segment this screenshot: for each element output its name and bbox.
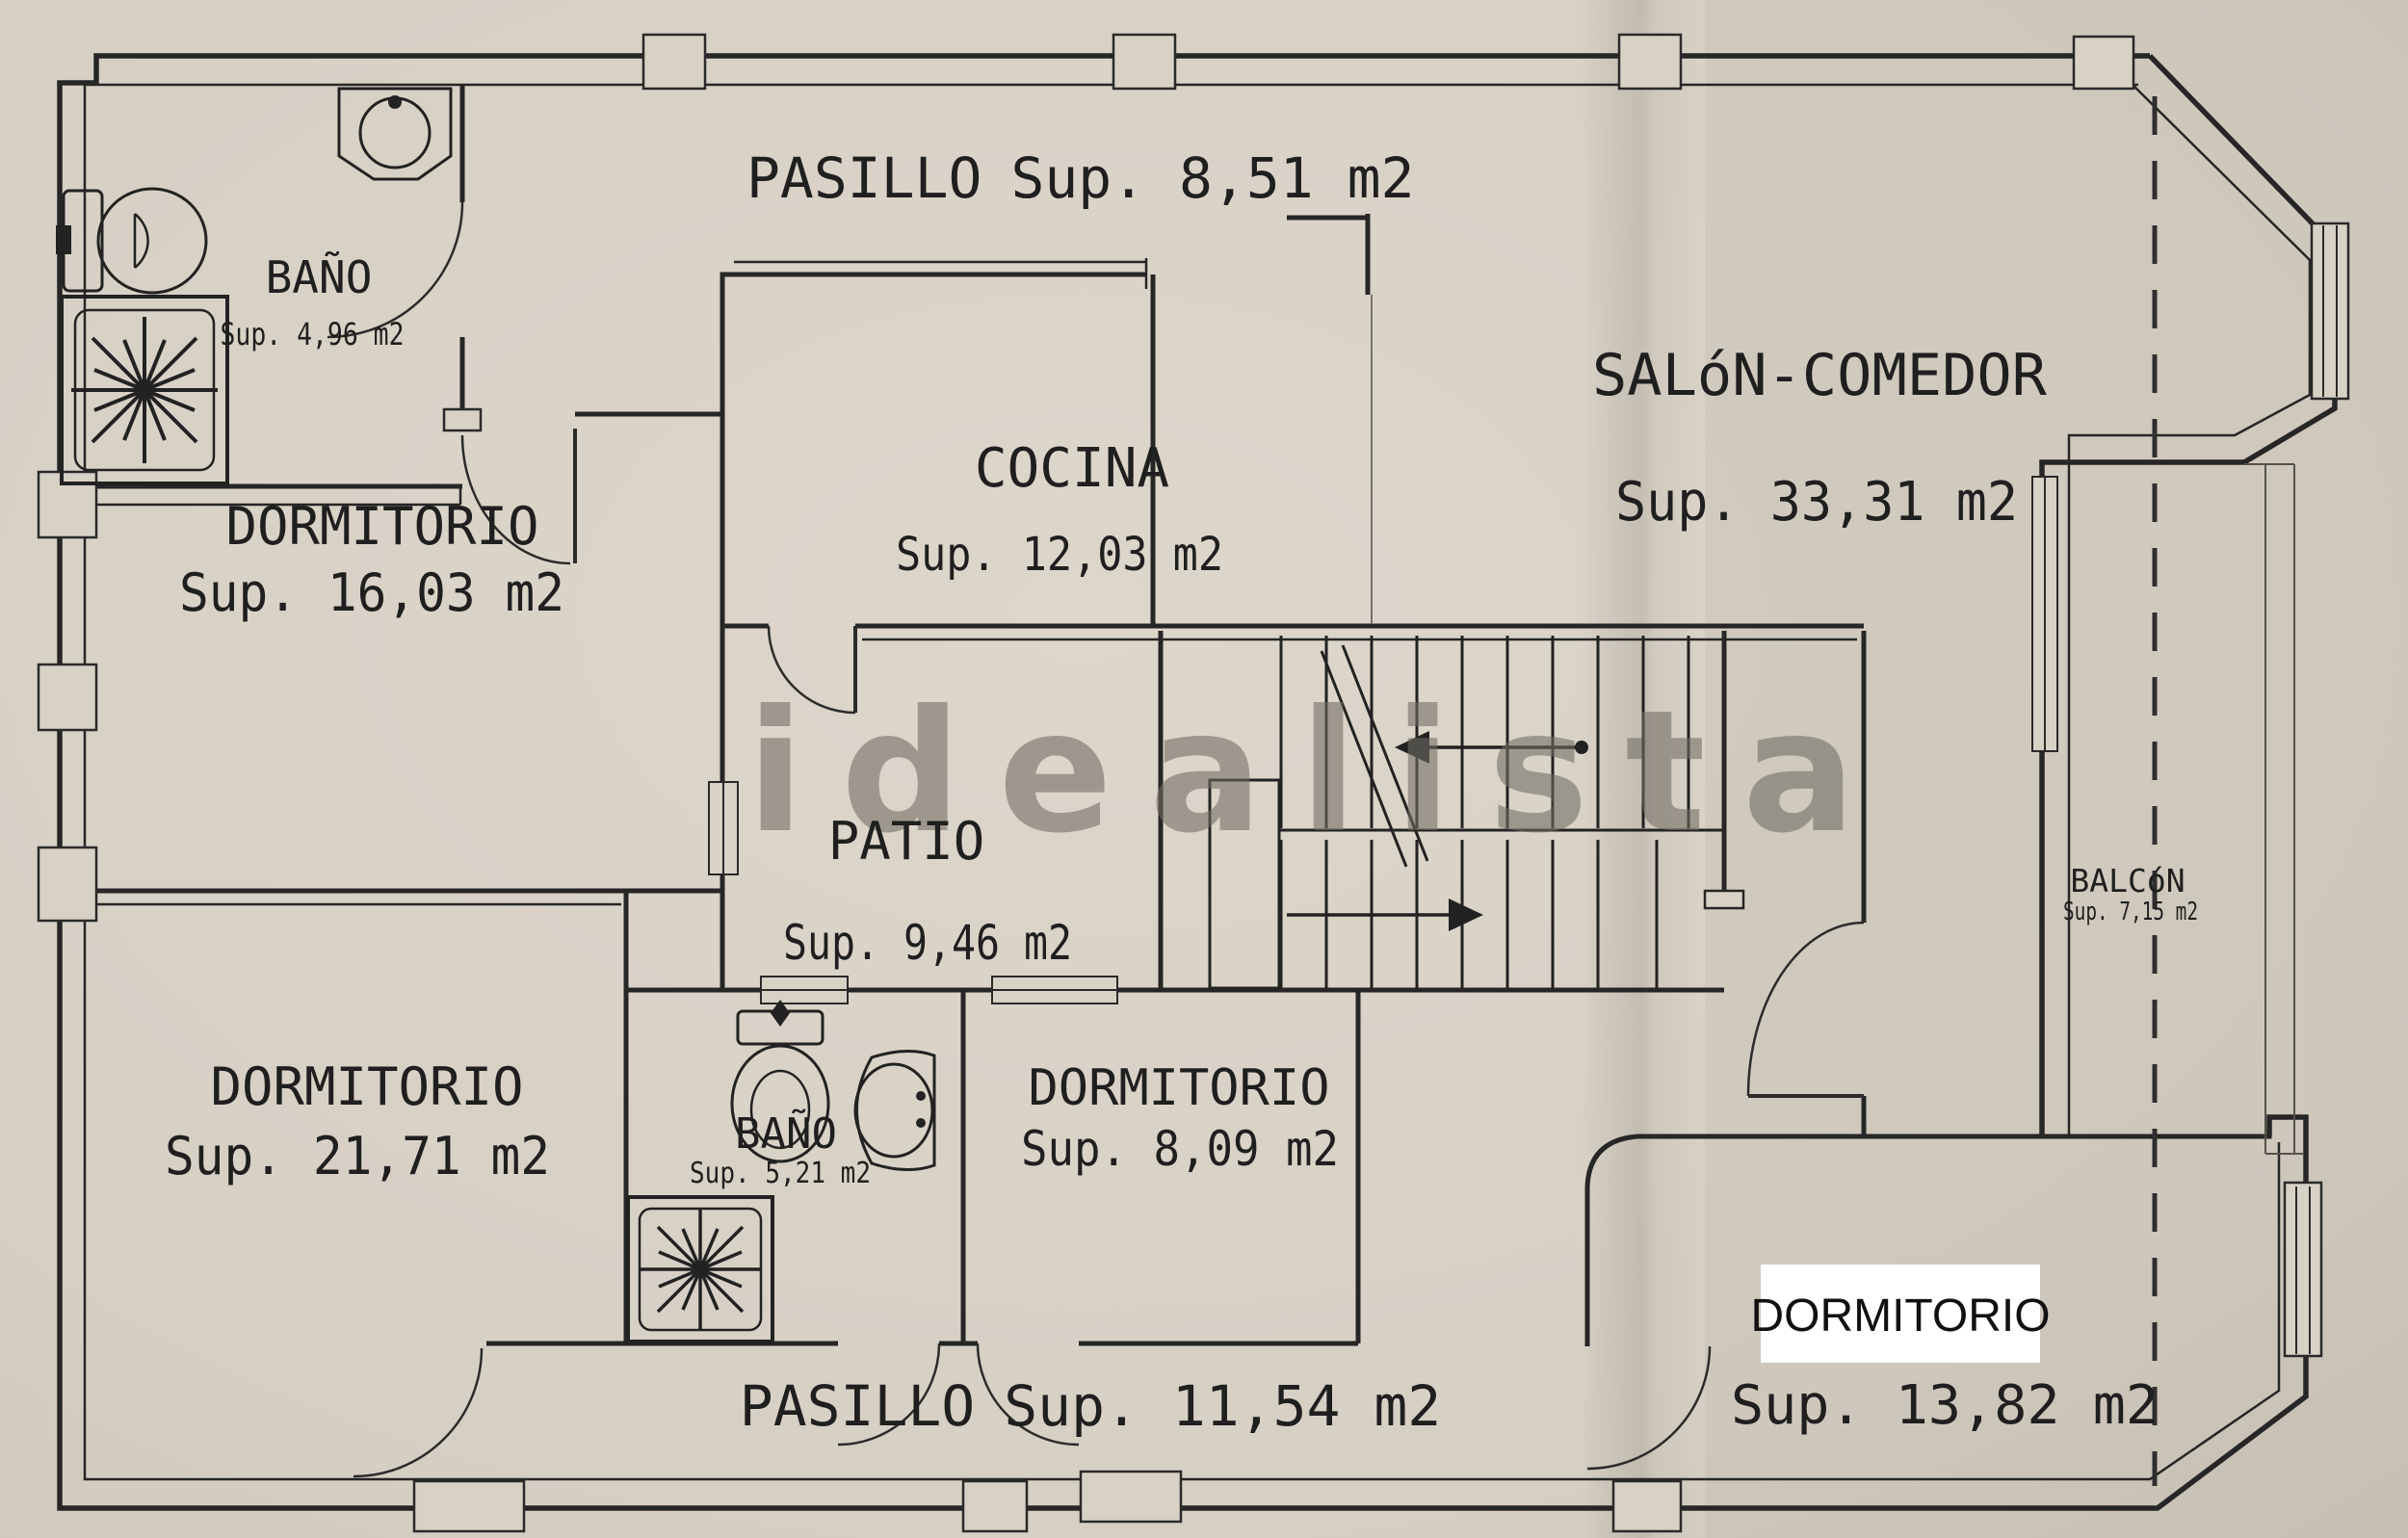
sink2-tap-icon2 bbox=[916, 1118, 926, 1128]
pillar-bottom-1 bbox=[414, 1481, 524, 1531]
pasillo-bottom-name: PASILLO bbox=[740, 1373, 975, 1439]
pillar-left-3 bbox=[39, 847, 96, 921]
label-pasillo-top: PASILLOSup. 8,51 m2 bbox=[746, 145, 1414, 211]
pillar-bottom-2 bbox=[963, 1481, 1027, 1531]
wall-cap-bano-top bbox=[444, 409, 481, 430]
label-cocina-sup: Sup. 12,03 m2 bbox=[896, 528, 1223, 582]
pillar-top-4 bbox=[2074, 37, 2133, 89]
pasillo-top-name: PASILLO bbox=[746, 145, 982, 211]
window-bay-dorm13 bbox=[2285, 1183, 2321, 1356]
label-bano-bottom-sup: Sup. 5,21 m2 bbox=[690, 1157, 871, 1190]
pillar-left-2 bbox=[39, 665, 96, 730]
label-cocina-name: COCINA bbox=[975, 437, 1169, 500]
shower-drain-center bbox=[139, 384, 150, 396]
label-dorm8-name: DORMITORIO bbox=[1028, 1059, 1329, 1117]
label-dorm21-sup: Sup. 21,71 m2 bbox=[165, 1126, 550, 1186]
floor-plan-canvas: idealista PASILLOSup. 8,51 m2 BAÑO Sup. … bbox=[0, 0, 2408, 1538]
label-dorm16-name: DORMITORIO bbox=[225, 496, 538, 557]
pasillo-top-sup: Sup. 8,51 m2 bbox=[1010, 145, 1414, 211]
label-pasillo-bottom: PASILLOSup. 11,54 m2 bbox=[740, 1373, 1441, 1439]
label-bano-top-sup: Sup. 4,96 m2 bbox=[221, 316, 405, 352]
label-dorm13-name: DORMITORIO bbox=[1750, 1290, 2050, 1342]
label-dorm16-sup: Sup. 16,03 m2 bbox=[179, 562, 564, 623]
label-patio-name: PATIO bbox=[828, 811, 985, 872]
label-dorm8-sup: Sup. 8,09 m2 bbox=[1021, 1121, 1339, 1177]
label-bano-top-name: BAÑO bbox=[266, 251, 373, 303]
label-balcon-name: BALCóN bbox=[2070, 862, 2185, 899]
label-salon-name: SALóN-COMEDOR bbox=[1592, 342, 2048, 409]
sink-tap-icon bbox=[388, 95, 402, 109]
label-dorm13-sup: Sup. 13,82 m2 bbox=[1731, 1374, 2159, 1437]
label-dorm21-name: DORMITORIO bbox=[210, 1056, 523, 1117]
pasillo-bottom-sup: Sup. 11,54 m2 bbox=[1004, 1373, 1441, 1439]
scanned-floor-plan: idealista PASILLOSup. 8,51 m2 BAÑO Sup. … bbox=[0, 0, 2408, 1538]
pillar-top-2 bbox=[1113, 35, 1175, 89]
pillar-bottom-3 bbox=[1613, 1481, 1681, 1531]
label-salon-sup: Sup. 33,31 m2 bbox=[1615, 471, 2018, 534]
door-frame-stub bbox=[1705, 891, 1743, 908]
pillar-bottom-mid bbox=[1081, 1472, 1181, 1522]
label-patio-sup: Sup. 9,46 m2 bbox=[783, 915, 1072, 971]
label-balcon-sup: Sup. 7,15 m2 bbox=[2063, 898, 2198, 926]
label-bano-bottom-name: BAÑO bbox=[735, 1108, 837, 1159]
window-bay-salon bbox=[2312, 223, 2348, 399]
pillar-top-1 bbox=[643, 35, 705, 89]
shower2-drain-center bbox=[695, 1264, 705, 1274]
toilet-flush-icon bbox=[56, 225, 71, 254]
pillar-top-3 bbox=[1619, 35, 1681, 89]
sink2-tap-icon bbox=[916, 1091, 926, 1101]
